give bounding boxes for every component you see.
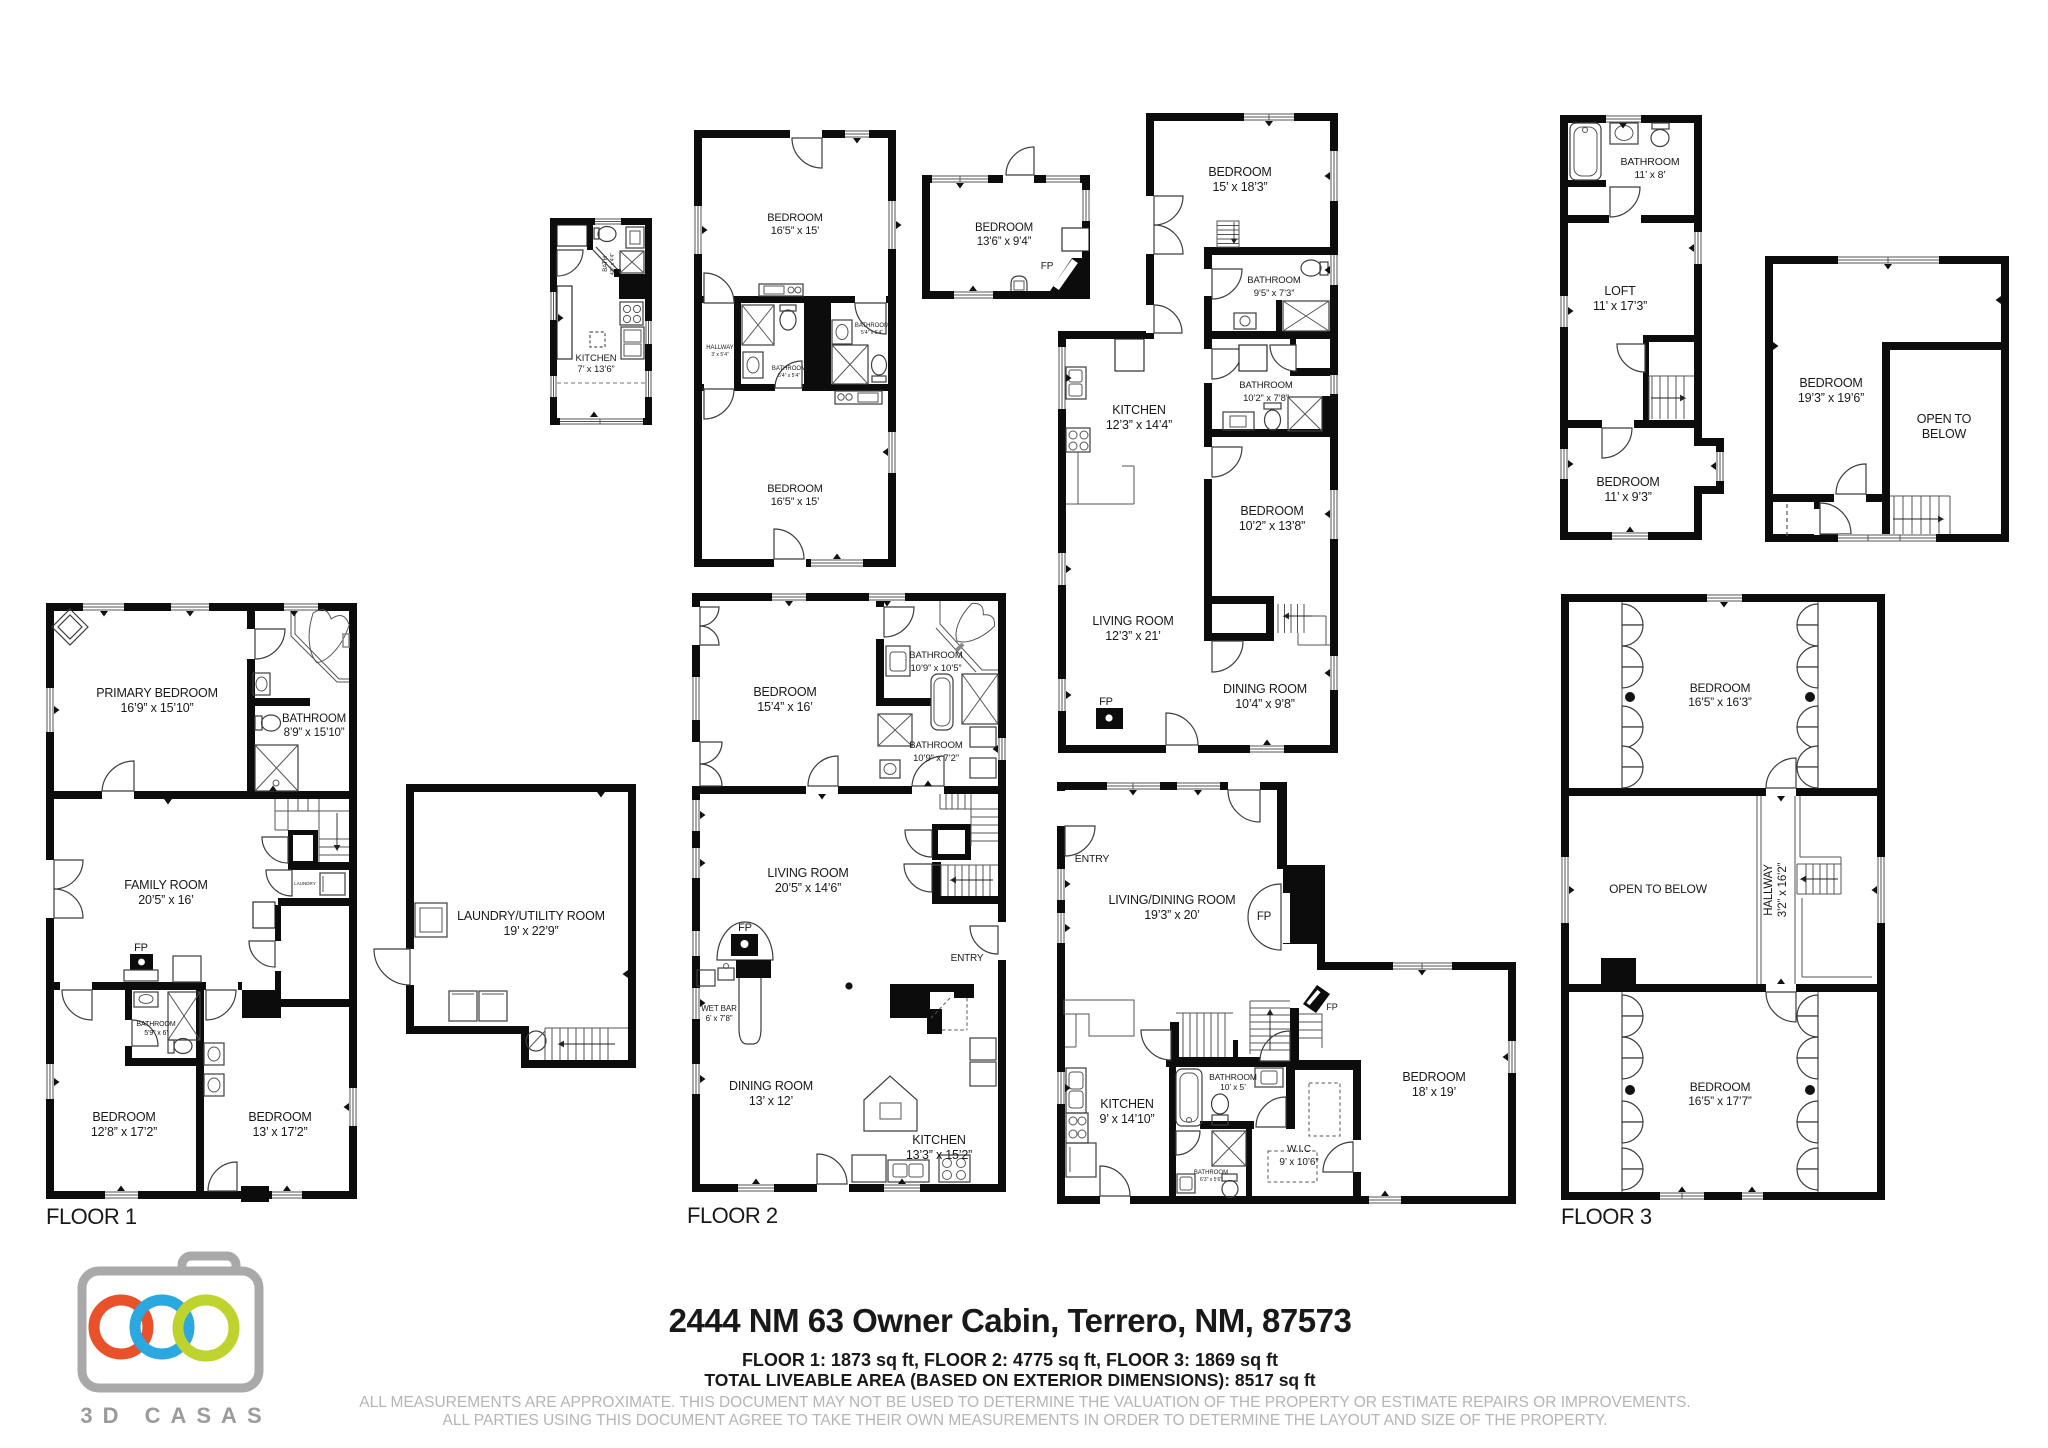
- svg-text:BATHROOM: BATHROOM: [1620, 156, 1679, 168]
- svg-text:11’ x 9’3”: 11’ x 9’3”: [1604, 490, 1651, 504]
- svg-text:FP: FP: [1326, 1002, 1337, 1012]
- svg-text:BATHROOM: BATHROOM: [1209, 1072, 1257, 1082]
- svg-text:KITCHEN: KITCHEN: [576, 353, 617, 364]
- svg-text:ENTRY: ENTRY: [951, 953, 984, 964]
- svg-text:BEDROOM: BEDROOM: [1690, 681, 1751, 695]
- svg-text:20’5” x 16’: 20’5” x 16’: [138, 893, 193, 907]
- svg-text:BEDROOM: BEDROOM: [1208, 165, 1271, 179]
- svg-text:10’9” x 10’5”: 10’9” x 10’5”: [911, 663, 962, 674]
- svg-text:BEDROOM: BEDROOM: [1596, 475, 1659, 489]
- svg-text:BATHROOM: BATHROOM: [772, 366, 806, 372]
- svg-text:9’5” x 7’3”: 9’5” x 7’3”: [1254, 288, 1295, 299]
- svg-text:BATH: BATH: [603, 256, 609, 272]
- svg-text:FAMILY ROOM: FAMILY ROOM: [124, 878, 207, 892]
- svg-text:20’5” x 14’6”: 20’5” x 14’6”: [775, 881, 841, 895]
- svg-text:19’ x 22’9”: 19’ x 22’9”: [503, 924, 558, 938]
- svg-text:16’5” x 15’: 16’5” x 15’: [771, 225, 820, 237]
- svg-text:BEDROOM: BEDROOM: [753, 685, 816, 699]
- svg-text:FLOOR 2: FLOOR 2: [687, 1203, 778, 1228]
- svg-text:16’5” x 16’3”: 16’5” x 16’3”: [1688, 695, 1752, 709]
- svg-text:LAUNDRY/UTILITY ROOM: LAUNDRY/UTILITY ROOM: [457, 909, 605, 923]
- svg-text:FP: FP: [1257, 911, 1272, 923]
- svg-text:FLOOR 1: 1873 sq ft, FLOOR 2:: FLOOR 1: 1873 sq ft, FLOOR 2: 4775 sq ft…: [742, 1350, 1278, 1370]
- svg-text:5’4” x 5’4”: 5’4” x 5’4”: [778, 373, 800, 379]
- svg-text:10’4” x 9’8”: 10’4” x 9’8”: [1235, 697, 1294, 711]
- svg-text:5’9” x 6’: 5’9” x 6’: [144, 1030, 168, 1037]
- svg-text:3’2” x 16’2”: 3’2” x 16’2”: [1777, 862, 1789, 917]
- svg-text:13’3” x 15’2”: 13’3” x 15’2”: [906, 1148, 972, 1162]
- svg-text:OPEN TO BELOW: OPEN TO BELOW: [1609, 882, 1708, 896]
- svg-text:KITCHEN: KITCHEN: [1100, 1097, 1154, 1111]
- svg-text:BEDROOM: BEDROOM: [767, 212, 822, 224]
- svg-text:19’3” x 20’: 19’3” x 20’: [1144, 908, 1199, 922]
- svg-text:ENTRY: ENTRY: [1075, 853, 1110, 865]
- svg-text:BEDROOM: BEDROOM: [1240, 504, 1303, 518]
- svg-text:18’ x 19’: 18’ x 19’: [1412, 1085, 1456, 1099]
- svg-text:BEDROOM: BEDROOM: [767, 483, 822, 495]
- svg-text:10’ x 5’: 10’ x 5’: [1220, 1082, 1246, 1092]
- svg-text:BEDROOM: BEDROOM: [92, 1110, 155, 1124]
- svg-text:FP: FP: [134, 942, 148, 954]
- svg-text:16’5” x 17’7”: 16’5” x 17’7”: [1688, 1094, 1752, 1108]
- svg-text:15’ x 18’3”: 15’ x 18’3”: [1212, 180, 1267, 194]
- svg-text:DINING ROOM: DINING ROOM: [1223, 682, 1307, 696]
- svg-text:13’ x 17’2”: 13’ x 17’2”: [252, 1125, 307, 1139]
- svg-text:LIVING ROOM: LIVING ROOM: [1092, 614, 1173, 628]
- svg-text:WET BAR: WET BAR: [701, 1004, 737, 1013]
- svg-text:12’3” x 14’4”: 12’3” x 14’4”: [1106, 418, 1172, 432]
- svg-text:BATHROOM: BATHROOM: [1194, 1170, 1228, 1176]
- svg-text:10’2” x 13’8”: 10’2” x 13’8”: [1239, 519, 1305, 533]
- svg-text:7’ x 13’6”: 7’ x 13’6”: [577, 364, 614, 375]
- svg-text:HALLWAY: HALLWAY: [706, 345, 734, 351]
- svg-text:BEDROOM: BEDROOM: [1402, 1070, 1465, 1084]
- svg-text:FP: FP: [1041, 261, 1054, 272]
- svg-text:BEDROOM: BEDROOM: [1690, 1080, 1751, 1094]
- svg-text:BEDROOM: BEDROOM: [248, 1110, 311, 1124]
- svg-text:DINING ROOM: DINING ROOM: [729, 1079, 813, 1093]
- svg-text:19’3” x 19’6”: 19’3” x 19’6”: [1798, 391, 1864, 405]
- svg-text:15’4” x 16’: 15’4” x 16’: [757, 700, 812, 714]
- svg-text:BATHROOM: BATHROOM: [909, 650, 963, 661]
- svg-text:4’8” x 4’4”: 4’8” x 4’4”: [610, 253, 616, 275]
- svg-text:BEDROOM: BEDROOM: [975, 222, 1033, 234]
- svg-text:9’ x 10’6”: 9’ x 10’6”: [1279, 1157, 1318, 1168]
- svg-text:12’8” x 17’2”: 12’8” x 17’2”: [91, 1125, 157, 1139]
- svg-text:BATHROOM: BATHROOM: [282, 713, 346, 725]
- svg-text:LIVING/DINING ROOM: LIVING/DINING ROOM: [1109, 893, 1236, 907]
- svg-text:KITCHEN: KITCHEN: [912, 1133, 966, 1147]
- svg-text:HALLWAY: HALLWAY: [1763, 864, 1775, 916]
- svg-text:PRIMARY BEDROOM: PRIMARY BEDROOM: [96, 686, 218, 700]
- svg-text:TOTAL LIVEABLE AREA (BASED ON: TOTAL LIVEABLE AREA (BASED ON EXTERIOR D…: [704, 1370, 1315, 1390]
- svg-text:5’4” x 5’4”: 5’4” x 5’4”: [861, 330, 883, 336]
- svg-text:FP: FP: [738, 922, 752, 934]
- svg-text:16’9” x 15’10”: 16’9” x 15’10”: [121, 701, 194, 715]
- svg-text:BATHROOM: BATHROOM: [1247, 275, 1301, 286]
- svg-text:ALL MEASUREMENTS ARE APPROXIMA: ALL MEASUREMENTS ARE APPROXIMATE. THIS D…: [359, 1394, 1691, 1411]
- svg-text:9’ x 14’10”: 9’ x 14’10”: [1099, 1112, 1154, 1126]
- svg-text:11’ x 17’3”: 11’ x 17’3”: [1593, 299, 1647, 313]
- svg-text:FP: FP: [1099, 696, 1113, 708]
- svg-text:3D CASAS: 3D CASAS: [80, 1403, 271, 1428]
- svg-text:13’ x 12’: 13’ x 12’: [749, 1094, 793, 1108]
- svg-text:BATHROOM: BATHROOM: [1239, 380, 1293, 391]
- svg-text:FLOOR 1: FLOOR 1: [46, 1204, 137, 1229]
- svg-text:OPEN TO: OPEN TO: [1917, 412, 1972, 426]
- svg-text:10’9” x 7’2”: 10’9” x 7’2”: [913, 753, 959, 764]
- svg-text:6’3” x 5’6”: 6’3” x 5’6”: [1200, 1177, 1222, 1183]
- svg-text:BATHROOM: BATHROOM: [136, 1021, 175, 1028]
- svg-text:3’ x 5’4”: 3’ x 5’4”: [711, 352, 729, 358]
- svg-text:11’ x 8’: 11’ x 8’: [1634, 169, 1665, 181]
- svg-text:BELOW: BELOW: [1922, 427, 1967, 441]
- svg-text:6’ x 7’8”: 6’ x 7’8”: [706, 1014, 733, 1023]
- svg-text:10’2” x 7’8”: 10’2” x 7’8”: [1243, 393, 1289, 404]
- svg-text:W.I.C: W.I.C: [1287, 1144, 1311, 1155]
- svg-text:KITCHEN: KITCHEN: [1112, 403, 1166, 417]
- svg-text:16’5” x 15’: 16’5” x 15’: [771, 496, 820, 508]
- svg-text:LAUNDRY: LAUNDRY: [294, 881, 315, 886]
- svg-text:13’6” x 9’4”: 13’6” x 9’4”: [977, 236, 1032, 248]
- svg-text:ALL PARTIES USING THIS DOCUMEN: ALL PARTIES USING THIS DOCUMENT AGREE TO…: [442, 1412, 1607, 1429]
- svg-text:FLOOR 3: FLOOR 3: [1561, 1204, 1652, 1229]
- svg-text:12’3” x 21’: 12’3” x 21’: [1105, 629, 1160, 643]
- svg-text:LOFT: LOFT: [1604, 284, 1636, 298]
- svg-text:BATHROOM: BATHROOM: [855, 323, 889, 329]
- svg-text:8’9” x 15’10”: 8’9” x 15’10”: [284, 727, 345, 739]
- svg-text:BATHROOM: BATHROOM: [909, 740, 963, 751]
- svg-text:2444 NM 63 Owner Cabin, Terrer: 2444 NM 63 Owner Cabin, Terrero, NM, 875…: [669, 1302, 1352, 1339]
- svg-text:LIVING ROOM: LIVING ROOM: [767, 866, 848, 880]
- svg-text:BEDROOM: BEDROOM: [1799, 376, 1862, 390]
